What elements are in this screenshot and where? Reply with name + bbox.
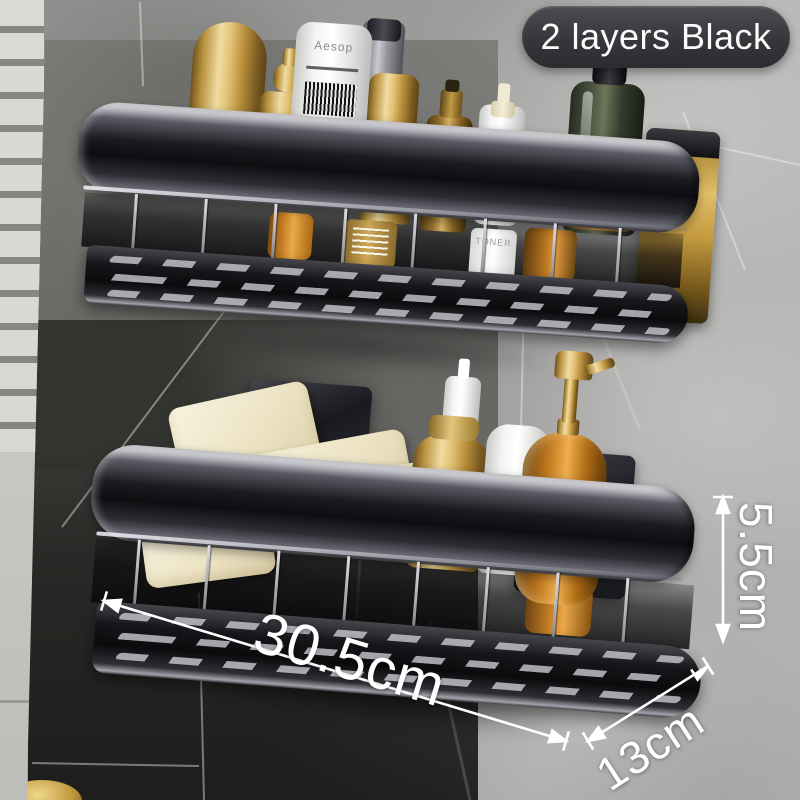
- variant-badge: 2 layers Black: [522, 6, 790, 68]
- product-photo: Aesop TONER: [0, 0, 800, 800]
- height-dimension-label: 5.5cm: [733, 467, 783, 667]
